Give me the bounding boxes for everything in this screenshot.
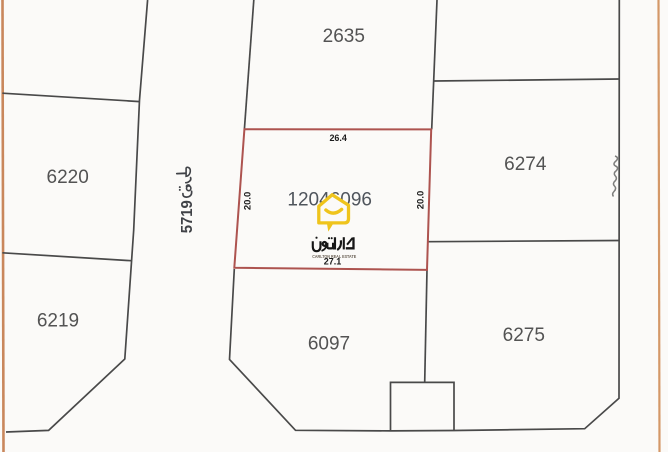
svg-text:6097: 6097	[308, 333, 350, 354]
svg-text:6275: 6275	[503, 325, 545, 346]
svg-text:6220: 6220	[47, 167, 89, 188]
svg-text:CARLTON REAL ESTATE: CARLTON REAL ESTATE	[312, 254, 357, 260]
svg-text:6274: 6274	[504, 154, 547, 175]
svg-text:20.0: 20.0	[242, 192, 253, 211]
svg-text:26.4: 26.4	[329, 133, 347, 143]
svg-text:2635: 2635	[323, 26, 365, 47]
svg-text:20.0: 20.0	[415, 191, 426, 210]
svg-text:5719: 5719	[179, 200, 196, 233]
svg-text:6219: 6219	[37, 311, 79, 332]
